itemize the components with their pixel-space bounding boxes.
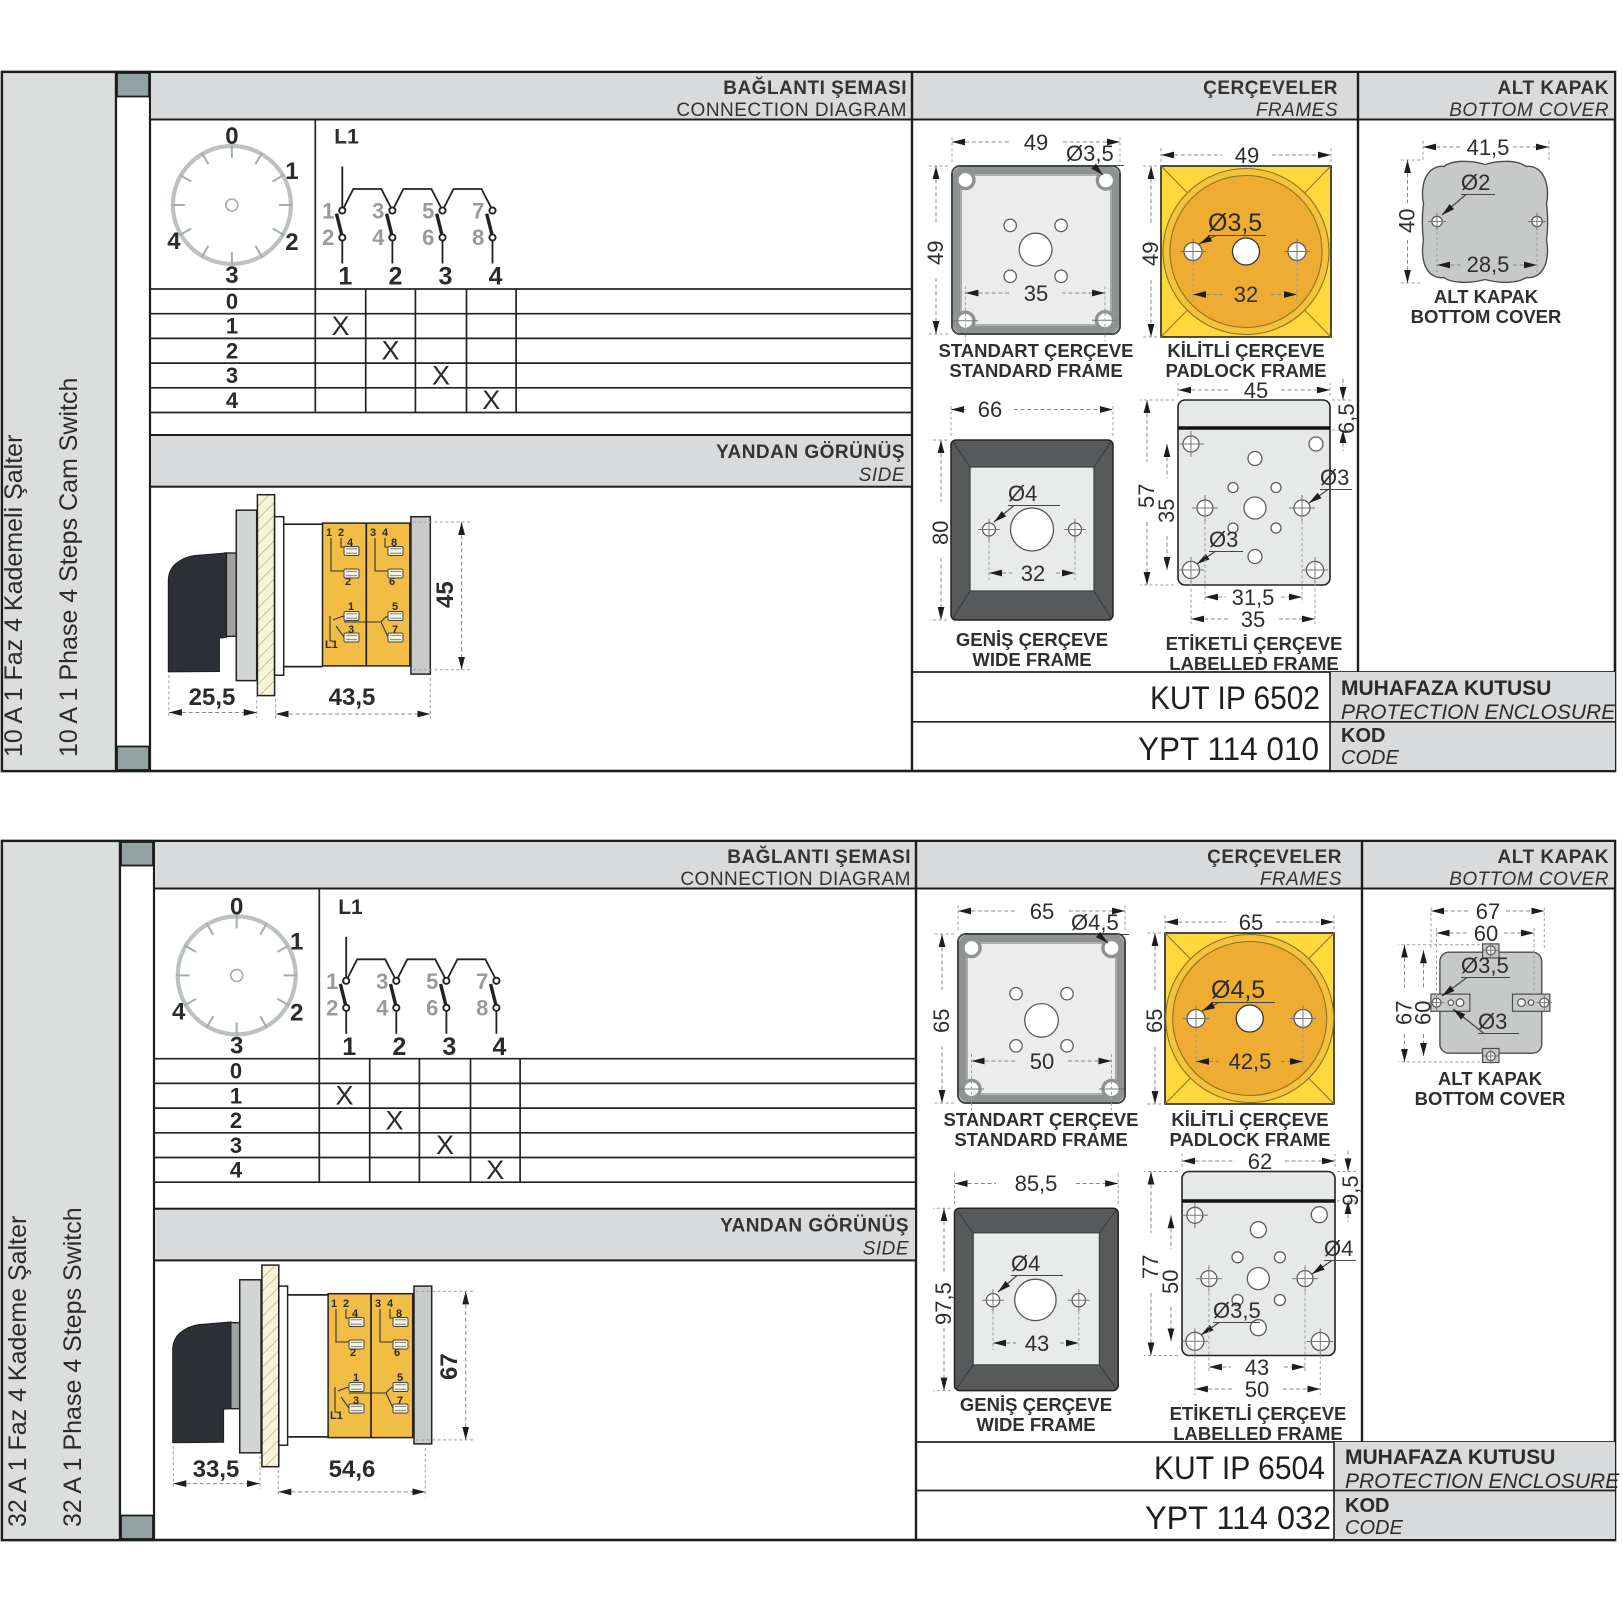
svg-text:ALT KAPAK: ALT KAPAK	[1434, 286, 1539, 307]
svg-text:43: 43	[1025, 1331, 1049, 1356]
svg-text:PROTECTION ENCLOSURE: PROTECTION ENCLOSURE	[1345, 1470, 1620, 1493]
svg-text:Ø3,5: Ø3,5	[1066, 141, 1114, 166]
svg-text:CONNECTION DIAGRAM: CONNECTION DIAGRAM	[676, 100, 907, 121]
svg-text:43,5: 43,5	[329, 684, 376, 711]
svg-text:MUHAFAZA KUTUSU: MUHAFAZA KUTUSU	[1345, 1446, 1555, 1469]
svg-text:Ø3: Ø3	[1209, 527, 1238, 552]
svg-text:97,5: 97,5	[931, 1282, 956, 1325]
svg-text:62: 62	[1248, 1149, 1272, 1174]
svg-text:WIDE FRAME: WIDE FRAME	[972, 649, 1091, 670]
svg-text:FRAMES: FRAMES	[1260, 869, 1342, 890]
svg-text:ALT KAPAK: ALT KAPAK	[1498, 78, 1609, 99]
svg-text:KİLİTLİ ÇERÇEVE: KİLİTLİ ÇERÇEVE	[1171, 1109, 1328, 1130]
svg-text:YPT 114 010: YPT 114 010	[1138, 731, 1319, 767]
svg-text:65: 65	[1239, 910, 1263, 935]
svg-text:67: 67	[436, 1353, 463, 1380]
svg-text:32 A 1 Phase 4 Steps Switch: 32 A 1 Phase 4 Steps Switch	[59, 1207, 87, 1527]
svg-text:60: 60	[1411, 1001, 1436, 1025]
svg-text:Ø3,5: Ø3,5	[1213, 1298, 1261, 1323]
svg-text:LABELLED FRAME: LABELLED FRAME	[1169, 653, 1339, 674]
svg-text:50: 50	[1158, 1270, 1183, 1294]
svg-text:BOTTOM COVER: BOTTOM COVER	[1415, 1088, 1566, 1109]
svg-text:LABELLED FRAME: LABELLED FRAME	[1173, 1423, 1343, 1444]
svg-text:BAĞLANTI ŞEMASI: BAĞLANTI ŞEMASI	[727, 846, 911, 868]
svg-text:STANDART ÇERÇEVE: STANDART ÇERÇEVE	[939, 340, 1134, 361]
svg-text:STANDARD FRAME: STANDARD FRAME	[954, 1129, 1127, 1150]
svg-text:1: 1	[326, 527, 332, 539]
svg-text:41,5: 41,5	[1467, 135, 1510, 160]
svg-text:6,5: 6,5	[1334, 403, 1359, 434]
svg-text:40: 40	[1395, 209, 1420, 233]
svg-text:ETİKETLİ ÇERÇEVE: ETİKETLİ ÇERÇEVE	[1166, 633, 1343, 654]
svg-text:28,5: 28,5	[1467, 252, 1510, 277]
svg-text:Ø3,5: Ø3,5	[1461, 953, 1509, 978]
svg-text:35: 35	[1241, 607, 1265, 632]
svg-text:Ø3,5: Ø3,5	[1208, 209, 1262, 237]
svg-text:25,5: 25,5	[189, 684, 236, 711]
svg-text:SIDE: SIDE	[859, 465, 905, 486]
svg-text:1: 1	[331, 1298, 337, 1310]
svg-text:60: 60	[1474, 921, 1498, 946]
svg-text:65: 65	[1142, 1009, 1167, 1033]
svg-text:54,6: 54,6	[329, 1456, 376, 1483]
svg-text:85,5: 85,5	[1015, 1171, 1058, 1196]
svg-text:35: 35	[1024, 281, 1048, 306]
svg-text:80: 80	[928, 521, 953, 545]
svg-text:Ø4: Ø4	[1011, 1251, 1040, 1276]
svg-text:KİLİTLİ ÇERÇEVE: KİLİTLİ ÇERÇEVE	[1167, 340, 1324, 361]
svg-text:9,5: 9,5	[1338, 1175, 1363, 1206]
svg-text:CODE: CODE	[1341, 747, 1399, 769]
svg-text:Ø4,5: Ø4,5	[1211, 976, 1265, 1004]
svg-text:ETİKETLİ ÇERÇEVE: ETİKETLİ ÇERÇEVE	[1170, 1403, 1347, 1424]
svg-text:32: 32	[1021, 561, 1045, 586]
svg-text:Ø4: Ø4	[1008, 481, 1037, 506]
svg-text:KOD: KOD	[1341, 725, 1385, 747]
svg-text:33,5: 33,5	[193, 1456, 240, 1483]
svg-text:GENİŞ ÇERÇEVE: GENİŞ ÇERÇEVE	[956, 629, 1108, 650]
svg-text:BAĞLANTI ŞEMASI: BAĞLANTI ŞEMASI	[723, 77, 907, 99]
svg-text:50: 50	[1030, 1049, 1054, 1074]
svg-text:STANDARD FRAME: STANDARD FRAME	[949, 360, 1122, 381]
svg-text:32: 32	[1234, 282, 1258, 307]
svg-text:65: 65	[929, 1009, 954, 1033]
svg-text:Ø3: Ø3	[1320, 465, 1349, 490]
svg-text:KUT IP 6502: KUT IP 6502	[1150, 680, 1320, 716]
svg-text:CONNECTION DIAGRAM: CONNECTION DIAGRAM	[680, 869, 911, 890]
svg-text:BOTTOM COVER: BOTTOM COVER	[1449, 100, 1609, 121]
svg-text:KOD: KOD	[1345, 1495, 1389, 1517]
svg-text:2: 2	[343, 1298, 349, 1310]
svg-text:MUHAFAZA KUTUSU: MUHAFAZA KUTUSU	[1341, 677, 1551, 700]
svg-text:2: 2	[338, 527, 344, 539]
svg-text:KUT IP 6504: KUT IP 6504	[1154, 1450, 1325, 1486]
svg-text:49: 49	[1024, 130, 1048, 155]
svg-text:45: 45	[1244, 378, 1268, 403]
svg-text:66: 66	[978, 397, 1002, 422]
svg-text:YPT 114 032: YPT 114 032	[1145, 1500, 1331, 1536]
svg-text:SIDE: SIDE	[863, 1239, 909, 1260]
svg-text:YANDAN GÖRÜNÜŞ: YANDAN GÖRÜNÜŞ	[720, 1216, 909, 1237]
svg-text:BOTTOM COVER: BOTTOM COVER	[1449, 869, 1609, 890]
svg-text:4: 4	[387, 1298, 394, 1310]
svg-text:BOTTOM COVER: BOTTOM COVER	[1411, 306, 1562, 327]
svg-text:YANDAN GÖRÜNÜŞ: YANDAN GÖRÜNÜŞ	[716, 442, 905, 463]
svg-text:PADLOCK FRAME: PADLOCK FRAME	[1169, 1129, 1330, 1150]
svg-text:42,5: 42,5	[1229, 1049, 1272, 1074]
svg-text:49: 49	[1235, 143, 1259, 168]
svg-text:49: 49	[1138, 242, 1163, 266]
svg-text:3: 3	[370, 527, 376, 539]
svg-text:CODE: CODE	[1345, 1517, 1403, 1539]
svg-text:45: 45	[432, 581, 459, 608]
svg-text:35: 35	[1154, 499, 1179, 523]
svg-text:Ø4: Ø4	[1324, 1236, 1353, 1261]
svg-text:Ø3: Ø3	[1478, 1009, 1507, 1034]
svg-text:32 A 1 Faz 4 Kademe Şalter: 32 A 1 Faz 4 Kademe Şalter	[4, 1216, 32, 1527]
svg-text:10 A 1 Phase 4 Steps Cam Switc: 10 A 1 Phase 4 Steps Cam Switch	[55, 378, 83, 757]
svg-text:GENİŞ ÇERÇEVE: GENİŞ ÇERÇEVE	[960, 1394, 1112, 1415]
svg-text:STANDART ÇERÇEVE: STANDART ÇERÇEVE	[944, 1109, 1139, 1130]
svg-text:PROTECTION ENCLOSURE: PROTECTION ENCLOSURE	[1341, 701, 1616, 724]
svg-text:ALT KAPAK: ALT KAPAK	[1498, 847, 1609, 868]
svg-text:50: 50	[1245, 1377, 1269, 1402]
svg-text:49: 49	[923, 241, 948, 265]
svg-text:Ø4,5: Ø4,5	[1071, 910, 1119, 935]
svg-text:WIDE FRAME: WIDE FRAME	[976, 1414, 1095, 1435]
svg-text:FRAMES: FRAMES	[1256, 100, 1338, 121]
svg-text:10 A 1 Faz 4 Kademeli Şalter: 10 A 1 Faz 4 Kademeli Şalter	[0, 435, 28, 757]
svg-text:ALT KAPAK: ALT KAPAK	[1438, 1068, 1543, 1089]
svg-text:ÇERÇEVELER: ÇERÇEVELER	[1207, 847, 1342, 868]
svg-text:3: 3	[375, 1298, 381, 1310]
svg-text:Ø2: Ø2	[1461, 170, 1490, 195]
svg-text:ÇERÇEVELER: ÇERÇEVELER	[1203, 78, 1338, 99]
svg-text:4: 4	[382, 527, 389, 539]
svg-text:65: 65	[1030, 899, 1054, 924]
